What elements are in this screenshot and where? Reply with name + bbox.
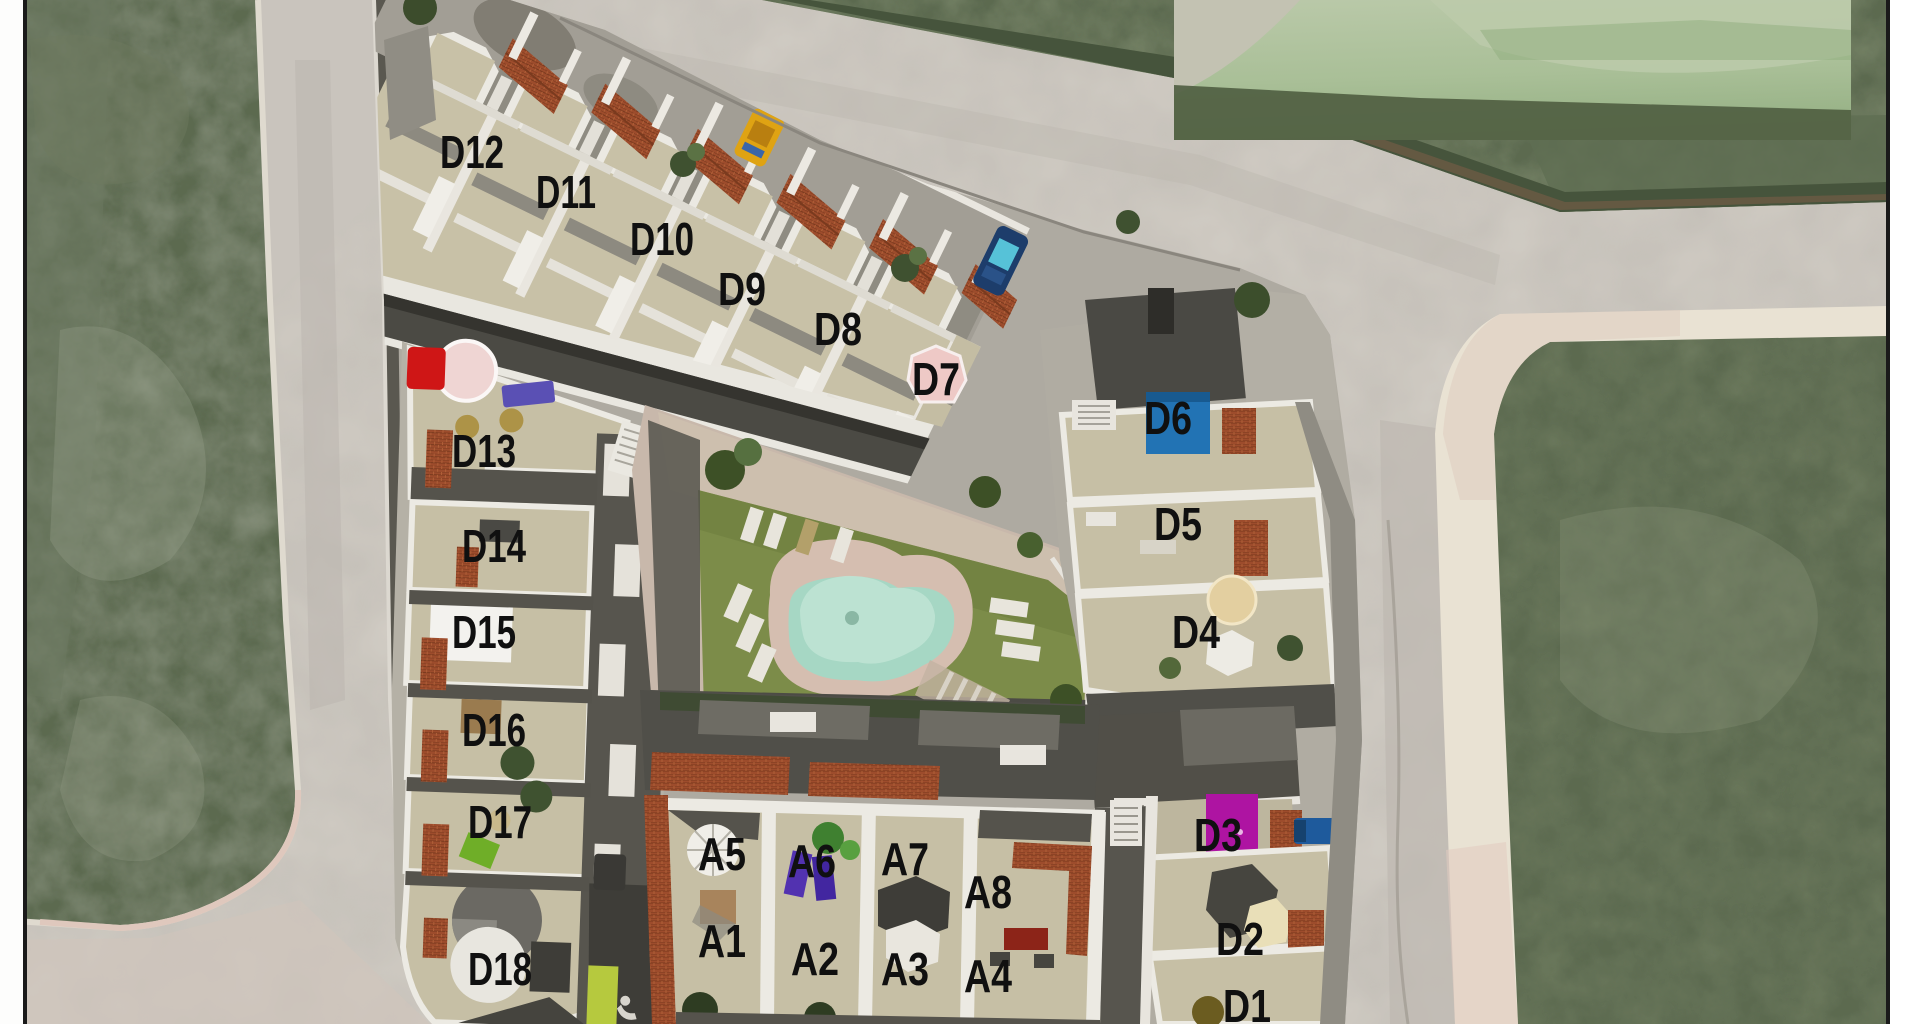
svg-text:D16: D16 [462,704,526,756]
svg-text:A6: A6 [788,835,836,887]
svg-text:A4: A4 [964,950,1012,1002]
svg-text:D17: D17 [468,796,532,848]
svg-text:D10: D10 [630,213,694,265]
svg-text:D5: D5 [1154,498,1202,550]
svg-text:A2: A2 [791,933,839,985]
svg-text:D4: D4 [1172,606,1220,658]
svg-text:D3: D3 [1194,809,1242,861]
svg-text:A1: A1 [698,915,746,967]
svg-text:D6: D6 [1144,392,1192,444]
svg-text:D14: D14 [462,520,526,572]
svg-text:D2: D2 [1216,913,1264,965]
svg-text:D11: D11 [536,166,596,218]
svg-text:A3: A3 [881,943,929,995]
svg-text:D7: D7 [912,353,960,405]
svg-text:D18: D18 [468,943,532,995]
svg-text:A5: A5 [698,828,746,880]
svg-text:D12: D12 [440,126,504,178]
svg-text:A8: A8 [964,866,1012,918]
svg-text:D15: D15 [452,606,516,658]
svg-text:A7: A7 [881,833,929,885]
svg-text:D1: D1 [1223,980,1271,1024]
svg-text:D13: D13 [452,425,516,477]
svg-text:D8: D8 [814,303,862,355]
svg-text:D9: D9 [718,263,766,315]
